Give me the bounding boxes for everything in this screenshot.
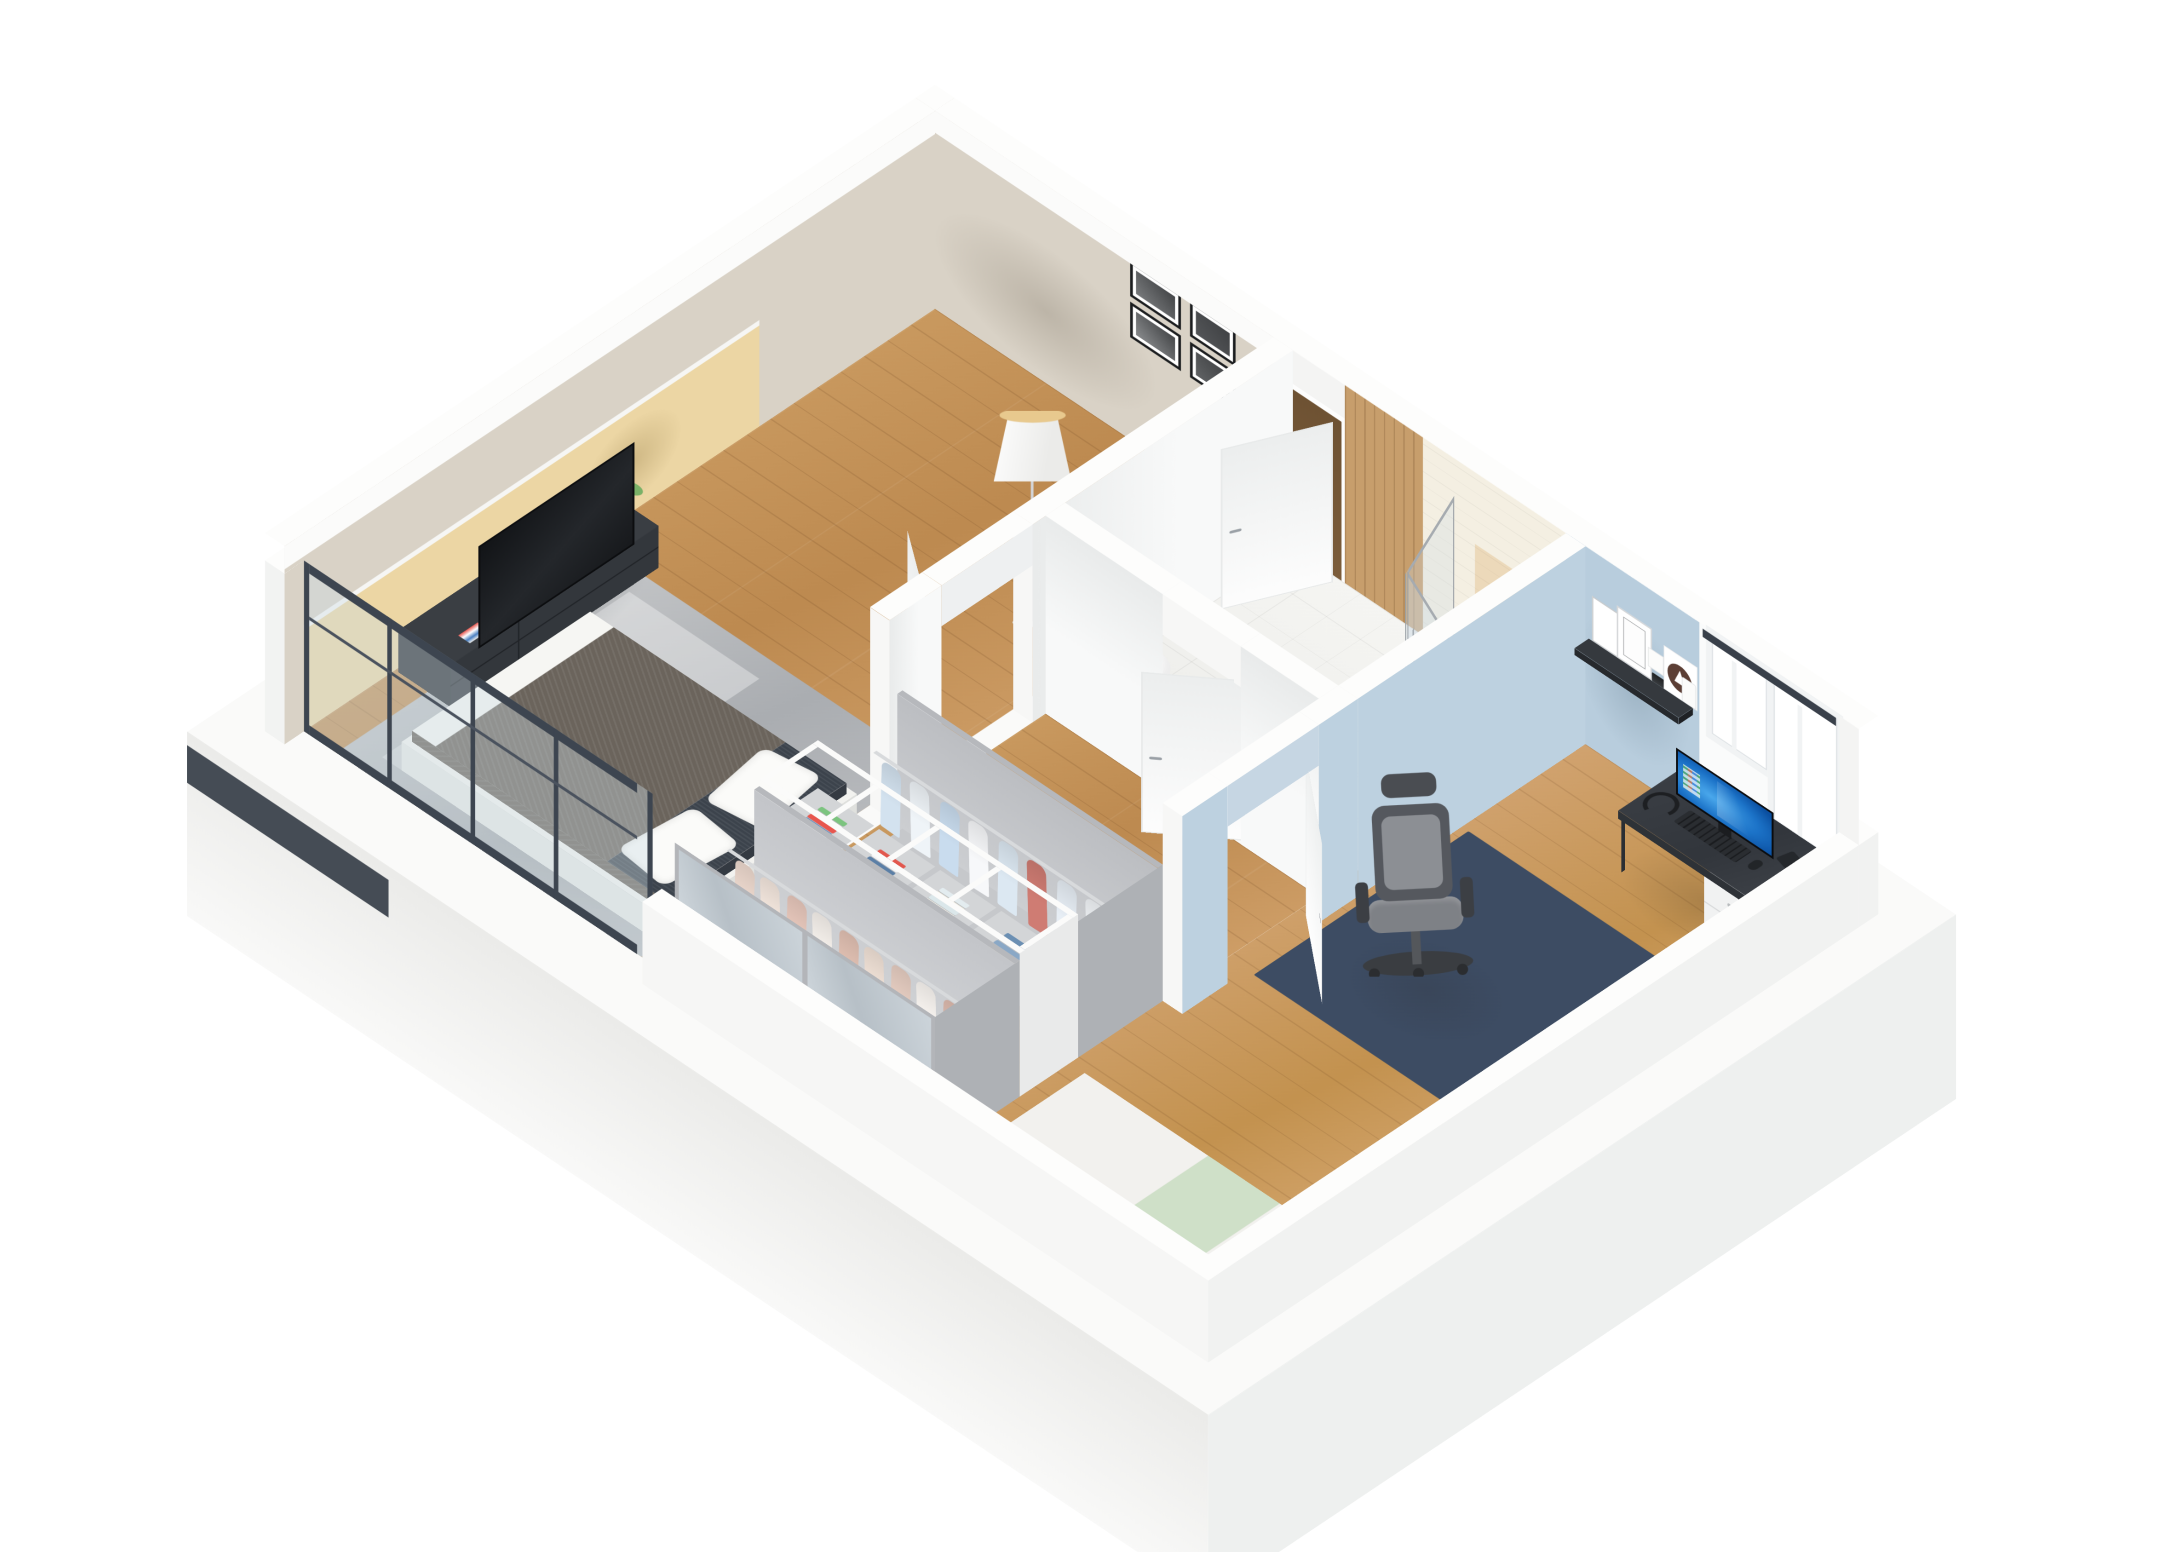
tv-stand-door-line [518,619,519,662]
chair-headrest [1380,772,1436,799]
mouse [1746,858,1766,871]
start-tiles [1683,764,1700,799]
office-partition-end [1163,803,1183,1014]
chair-seat [1367,896,1464,934]
chair-backrest [1371,802,1453,902]
chair-armrest [1460,877,1475,918]
door-handle [1229,528,1241,534]
floorplan-stage: 3D isometric cutaway floor plan render: … [0,0,2173,1552]
window-b-mullion [1798,704,1803,838]
desk-leg [1621,818,1625,873]
office-partition-face2 [1182,786,1228,1015]
chair-back-pad [1381,814,1444,891]
glazing-mullion [554,728,559,902]
chair-armrest [1355,882,1370,923]
window-a-mullion [1732,660,1737,750]
entry-door-leaf [1221,422,1333,610]
lamp-shade [991,413,1074,481]
chair-caster [1457,964,1469,976]
glazing-mullion [387,616,392,790]
door-handle [1319,913,1321,924]
chair-stem [1411,927,1422,964]
scene-wrapper [75,23,2074,1451]
door-handle [1149,757,1162,761]
glazing-mullion [471,672,476,846]
lamp-shade-inner [999,408,1065,423]
glazing-corner-face [265,560,285,744]
